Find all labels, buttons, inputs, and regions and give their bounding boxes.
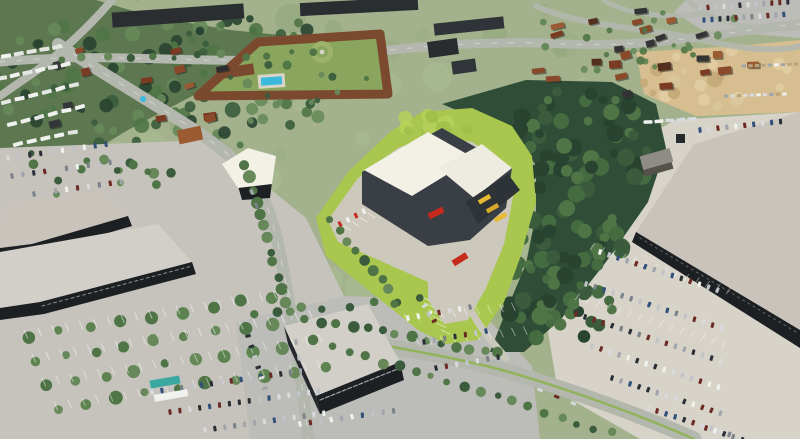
woods-topcenter-canopy [249, 23, 263, 37]
garden-center [320, 50, 325, 55]
woods-topleft-canopy [281, 98, 292, 109]
trees-road-main [267, 256, 277, 266]
trees-boulevard-south [459, 382, 469, 392]
trees-road-main [267, 249, 275, 257]
cars-left-parking-2 [97, 161, 101, 167]
forest-east-canopy-north [628, 130, 638, 140]
equipment-dirt-2 [756, 93, 761, 96]
cars-topright-row-1 [778, 0, 781, 5]
woods-topleft-canopy [246, 103, 258, 115]
site-hill-grass [425, 110, 438, 123]
cars-bottomleft-row-1 [249, 375, 252, 381]
trees-lot-row-3 [218, 350, 231, 363]
trees-road-main [243, 170, 256, 183]
forest-east-canopy-north [534, 161, 550, 177]
forest-east-canopy-north [538, 111, 553, 126]
woods-topcenter-canopy [196, 27, 203, 34]
trees-misc-center [328, 73, 336, 81]
cars-bottomleft-row-1 [180, 385, 183, 391]
forest-east-canopy-north [620, 98, 636, 114]
cars-topright-row-2 [718, 16, 721, 22]
cars-bottomleft-row-2 [238, 399, 242, 405]
trees-site-west [383, 284, 393, 294]
trees-site-west [368, 265, 379, 276]
cars-topright-row-2 [758, 13, 761, 19]
trees-boulevard-south [589, 426, 596, 433]
houses-residential-3 [713, 51, 722, 59]
residential-trees [640, 47, 648, 55]
cars-bottomleft-row-2 [307, 390, 311, 396]
houses-residential-2 [591, 59, 601, 66]
cars-topright-row-2 [742, 14, 745, 20]
cars-left-parking-2 [21, 172, 24, 178]
cars-bottomleft-row-3 [233, 423, 236, 429]
trees-road-main [286, 307, 294, 315]
forest-east-canopy-north [535, 129, 544, 138]
forest-east-canopy-north [571, 172, 584, 185]
woods-topcenter-canopy [186, 30, 192, 36]
trees-road-top [104, 52, 112, 60]
trees-misc-center [334, 89, 340, 95]
cars-topright-row-1 [770, 0, 773, 6]
forest-east-canopy-south [591, 259, 603, 271]
trees-lot-row-4 [80, 399, 91, 410]
woods-topcenter-canopy [189, 36, 196, 43]
trees-boulevard-north [316, 318, 327, 329]
trucks-bigbox-top [665, 119, 674, 123]
residential-trees [690, 52, 696, 58]
woods-topleft-canopy [48, 23, 61, 36]
residential-trees [631, 48, 637, 54]
trees-road-top [77, 53, 85, 61]
trees-lot-center [296, 302, 306, 312]
trees-road-main [254, 209, 265, 220]
woods-topcenter-canopy [202, 40, 209, 47]
cars-bigbox-top [770, 120, 774, 126]
trees-road-top [149, 53, 156, 60]
residential-trees [604, 52, 609, 57]
forest-east-canopy-south [546, 319, 554, 327]
equipment-dirt-1 [794, 63, 799, 66]
trees-boulevard-north [331, 319, 340, 328]
forest-east-canopy-south [529, 330, 544, 345]
small-backyard-pool [140, 96, 146, 102]
woods-topcenter-canopy [218, 21, 225, 28]
cars-bottomleft-row-2 [178, 408, 181, 414]
trees-road-top [127, 54, 135, 62]
cars-bottomcenter-row-3 [507, 352, 511, 358]
woods-topleft-canopy [225, 102, 241, 118]
trees-boulevard-north [379, 326, 387, 334]
forest-east-canopy-north [599, 96, 608, 105]
cars-bigbox-top [761, 121, 765, 127]
houses-residential-2 [659, 82, 673, 90]
trees-boulevard-south [346, 348, 354, 356]
dirt-patches [649, 90, 656, 97]
forest-east-canopy-south [567, 298, 579, 310]
cars-bottomleft-row-3 [322, 410, 326, 416]
equipment-dirt-2 [737, 94, 742, 97]
trees-boulevard-north [407, 331, 418, 342]
cars-bottomcenter-row-4 [361, 412, 364, 418]
trees-boulevard-south [378, 359, 389, 370]
cars-bottomleft-row-3 [312, 412, 315, 418]
cars-left-parking-1 [72, 146, 75, 152]
trees-road-main [258, 220, 269, 231]
trees-road-main [262, 232, 273, 243]
trees-misc-center [364, 76, 369, 81]
forest-east-canopy-south [548, 278, 560, 290]
dirt-patches [695, 79, 707, 91]
trees-boulevard-south [573, 421, 580, 428]
cars-bigbox-top [734, 123, 737, 129]
cars-topright-row-1 [786, 0, 789, 5]
trees-road-top [309, 48, 317, 56]
trees-misc-center [264, 61, 272, 69]
houses-residential-2 [546, 76, 560, 82]
cars-bottomleft-row-1 [299, 368, 302, 374]
dirt-patches [713, 101, 723, 111]
trees-boulevard-south [443, 379, 450, 386]
trucks-bigbox-top [687, 117, 696, 121]
trees-site-west [359, 255, 370, 266]
woods-topleft-canopy [33, 39, 43, 49]
forest-east-canopy-south [501, 304, 519, 322]
trees-lot-row-2 [118, 341, 129, 352]
residential-trees [652, 64, 657, 69]
woods-topleft-canopy [237, 142, 244, 149]
trees-lot-row-2 [300, 315, 308, 323]
trees-boulevard-south [412, 367, 421, 376]
trees-boulevard-south [427, 373, 433, 379]
forest-east-canopy-south [567, 254, 581, 268]
cars-left-parking-3 [98, 182, 102, 188]
trees-road-top [289, 49, 294, 54]
trees-lot-row-2 [92, 348, 102, 358]
trees-site-west [379, 275, 388, 284]
woods-topleft-canopy [83, 37, 97, 51]
forest-east-canopy-south [515, 292, 532, 309]
houses-residential-1 [614, 45, 624, 52]
trees-boulevard-south [608, 428, 616, 436]
cars-topright-row-1 [762, 1, 765, 7]
equipment-dirt-2 [782, 92, 787, 95]
trees-lot-row-3 [71, 376, 81, 386]
trees-lot-row-3 [276, 342, 289, 355]
trees-lot-row-4 [321, 362, 332, 373]
cars-left-parking-1 [6, 155, 9, 161]
woods-topleft-canopy [185, 101, 196, 112]
cars-bottomcenter-row-2 [443, 335, 447, 341]
equipment-dirt-2 [724, 94, 729, 97]
woods-topleft-canopy [99, 99, 113, 113]
forest-east-canopy-north [544, 96, 553, 105]
cars-bigbox-top [779, 119, 782, 125]
forest-east-canopy-south [604, 296, 614, 306]
residential-trees [581, 66, 588, 73]
equipment-dirt-1 [761, 64, 766, 67]
cars-topright-row-1 [698, 5, 701, 11]
trees-lot-row-3 [102, 372, 112, 382]
trees-lot-row-1 [208, 302, 220, 314]
trees-misc-center [318, 72, 324, 78]
cars-bottomcenter-row-2 [464, 332, 468, 338]
forest-east-canopy-south [543, 295, 556, 308]
cars-bottomcenter-row-3 [465, 360, 468, 366]
cars-topright-row-2 [782, 12, 786, 18]
trees-boulevard-south [523, 401, 532, 410]
kiosk [676, 134, 685, 143]
woods-topleft-canopy [31, 78, 40, 87]
trees-misc-center [314, 97, 320, 103]
trees-lot-row-1 [23, 331, 35, 343]
woods-topleft-canopy [109, 127, 117, 135]
cars-bottomcenter-row-3 [496, 354, 500, 360]
cars-bottomleft-row-3 [243, 422, 246, 428]
cars-topright-row-2 [726, 16, 729, 22]
cars-topright-row-1 [714, 4, 718, 10]
residential-trees [660, 10, 666, 16]
trees-site-west [326, 216, 333, 223]
cars-left-parking-3 [76, 185, 79, 191]
woods-topleft-canopy [3, 104, 14, 115]
forest-east-canopy-north [603, 104, 619, 120]
forest-east-canopy-north [561, 165, 573, 177]
trees-boulevard-north [437, 340, 444, 347]
apartment-pool [261, 76, 283, 85]
trees-left-parking [54, 177, 62, 185]
trees-lot-center [318, 306, 325, 313]
woods-topleft-canopy [311, 110, 324, 123]
residential-trees [714, 31, 722, 39]
forest-east-canopy-south [607, 305, 617, 315]
woods-topleft-canopy [134, 118, 149, 133]
forest-east-canopy-south [576, 281, 584, 289]
trees-boulevard-north [451, 342, 462, 353]
trees-left-parking [128, 160, 137, 169]
cars-bottomleft-row-2 [277, 394, 280, 400]
trees-lot-center [370, 298, 379, 307]
trees-lot-row-4 [140, 388, 148, 396]
trees-left-parking [29, 159, 39, 169]
cars-bottomleft-row-2 [267, 395, 270, 401]
trees-boulevard-south [495, 392, 501, 398]
trees-lot-row-2 [239, 322, 252, 335]
equipment-dirt-2 [769, 93, 774, 96]
cars-left-parking-1 [83, 144, 86, 150]
cars-left-parking-2 [65, 165, 69, 171]
trees-lot-row-1 [114, 315, 126, 327]
forest-east-canopy-south [614, 239, 631, 256]
cars-bottomcenter-row-4 [382, 409, 385, 415]
woods-topcenter-canopy [294, 18, 303, 27]
forest-east-canopy-south [532, 230, 546, 244]
woods-topleft-canopy [96, 27, 111, 42]
woods-topleft-canopy [258, 114, 268, 124]
trees-road-main [276, 283, 288, 295]
scene-svg [0, 0, 800, 439]
woods-topleft-canopy [169, 80, 181, 92]
forest-east-canopy-south [578, 330, 591, 343]
trees-road-top [194, 51, 201, 58]
residential-trees [541, 43, 549, 51]
trucks-bigbox-top [643, 120, 652, 124]
trees-lot-row-2 [62, 351, 70, 359]
trees-misc-center [282, 60, 291, 69]
forest-east-canopy-south [573, 189, 585, 201]
trees-boulevard-south [559, 414, 567, 422]
equipment-dirt-1 [781, 63, 786, 66]
forest-east-canopy-north [556, 138, 572, 154]
forest-east-canopy-north [585, 87, 597, 99]
forest-east-canopy-north [585, 161, 598, 174]
forest-east-canopy-north [617, 149, 634, 166]
residential-trees [686, 44, 693, 51]
trees-lot-center [390, 300, 398, 308]
forest-east-canopy-south [546, 250, 560, 264]
trees-lot-row-3 [40, 379, 52, 391]
woods-topcenter-canopy [246, 15, 253, 22]
ground-mottle [355, 131, 370, 146]
houses-residential-3 [697, 55, 710, 61]
trees-boulevard-south [395, 360, 406, 371]
trees-boulevard-north [481, 347, 489, 355]
cars-bottomleft-row-1 [220, 379, 223, 385]
residential-trees [606, 27, 612, 33]
dirt-patches [672, 52, 681, 61]
dirt-patches [639, 78, 648, 87]
equipment-dirt-2 [730, 94, 735, 97]
residential-trees [594, 67, 601, 74]
ground-mottle [423, 62, 452, 91]
cars-bottomleft-row-2 [317, 388, 321, 394]
trees-lot-row-3 [127, 365, 140, 378]
forest-east-canopy-north [611, 96, 620, 105]
trees-road-top [58, 56, 65, 63]
residential-trees [583, 34, 591, 42]
cars-topright-row-2 [766, 13, 770, 19]
equipment-dirt-2 [750, 94, 755, 97]
cars-bottomcenter-row-2 [422, 339, 426, 345]
residential-trees [642, 27, 647, 32]
trees-road-top [242, 53, 250, 61]
equipment-dirt-1 [755, 64, 760, 67]
cars-bottomleft-row-3 [203, 427, 207, 433]
forest-east-canopy-south [554, 318, 566, 330]
trees-misc-center [309, 100, 314, 105]
cars-bottomleft-row-2 [218, 402, 221, 408]
trees-boulevard-south [540, 409, 549, 418]
cars-left-parking-3 [119, 179, 122, 185]
woods-topleft-canopy [285, 120, 295, 130]
forest-east-canopy-south [559, 200, 575, 216]
woods-topleft-canopy [65, 67, 80, 82]
houses-residential-2 [609, 60, 622, 69]
trees-left-parking [144, 168, 151, 175]
trees-left-parking [166, 168, 176, 178]
trees-left-parking [152, 180, 161, 189]
residential-trees [651, 17, 657, 23]
trees-misc-center [228, 75, 233, 80]
trees-lot-center [346, 303, 354, 311]
dirt-patches [776, 83, 784, 91]
cars-bottomleft-row-2 [297, 391, 300, 397]
forest-east-canopy-north [553, 113, 569, 129]
trees-road-main [239, 160, 249, 170]
cars-topright-row-2 [702, 17, 705, 23]
equipment-dirt-1 [787, 63, 792, 66]
cars-bottomleft-row-2 [228, 401, 232, 407]
trees-road-main [280, 297, 291, 308]
trees-left-parking [114, 167, 121, 174]
woods-topleft-canopy [218, 126, 231, 139]
trees-boulevard-north [348, 321, 360, 333]
trees-site-west [342, 237, 351, 246]
trees-road-top [217, 49, 226, 58]
trees-boulevard-south [329, 342, 337, 350]
site-hill-grass [404, 126, 413, 135]
trees-road-top [263, 53, 270, 60]
equipment-dirt-1 [748, 64, 753, 67]
woods-topleft-canopy [248, 118, 254, 124]
trees-lot-row-1 [177, 307, 190, 320]
cars-topright-row-2 [710, 17, 713, 23]
equipment-dirt-1 [774, 63, 779, 66]
forest-east-canopy-north [584, 117, 593, 126]
residential-trees [636, 56, 645, 65]
trees-road-main [275, 273, 284, 282]
equipment-dirt-2 [743, 94, 748, 97]
cars-bottomleft-row-1 [190, 384, 193, 390]
trees-lot-row-1 [235, 294, 247, 306]
cars-bottomcenter-row-4 [392, 408, 396, 414]
site-hill-grass [462, 124, 473, 135]
equipment-dirt-2 [776, 93, 781, 96]
trees-lot-center [250, 310, 258, 318]
forest-east-canopy-south [608, 214, 617, 223]
cars-left-parking-1 [28, 152, 32, 158]
aerial-site-rendering [0, 0, 800, 439]
trees-boulevard-south [361, 351, 370, 360]
woods-topleft-canopy [91, 119, 98, 126]
residential-trees [672, 43, 676, 47]
equipment-dirt-1 [742, 64, 747, 67]
forest-east-canopy-north [606, 125, 623, 142]
forest-east-canopy-south [577, 224, 591, 238]
trees-boulevard-south [507, 395, 517, 405]
forest-east-canopy-north [538, 103, 547, 112]
equipment-dirt-1 [768, 64, 773, 67]
forest-east-canopy-north [626, 168, 643, 185]
trees-boulevard-north [390, 330, 398, 338]
dirt-patches [681, 68, 688, 75]
trees-boulevard-north [364, 323, 373, 332]
woods-topleft-canopy [125, 26, 140, 41]
trees-road-top [172, 56, 177, 61]
trees-lot-row-1 [86, 322, 96, 332]
trees-site-west [351, 247, 359, 255]
houses-residential-2 [657, 62, 671, 71]
trees-boulevard-north [464, 344, 474, 354]
woods-topcenter-canopy [200, 70, 208, 78]
trees-lot-row-3 [308, 335, 318, 345]
forest-east-canopy-south [526, 264, 535, 273]
trees-lot-row-3 [190, 353, 202, 365]
woods-topleft-canopy [16, 36, 25, 45]
cars-topright-row-2 [750, 14, 754, 20]
trees-site-west [336, 226, 344, 234]
residential-trees [540, 19, 547, 26]
